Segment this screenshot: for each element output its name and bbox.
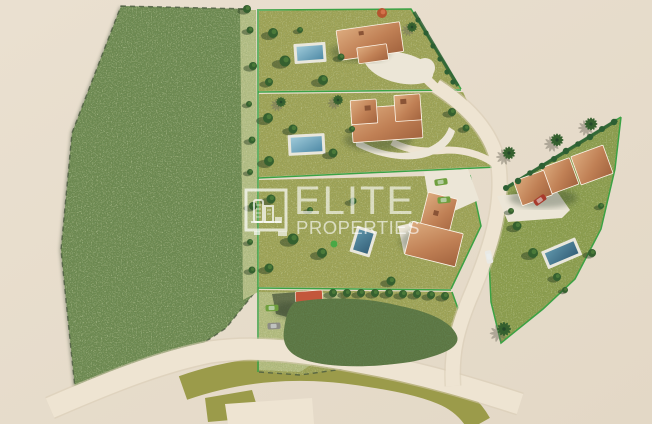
car-green-3: [265, 305, 278, 312]
pool-1: [293, 42, 326, 64]
pool-2: [288, 133, 326, 156]
car-grey: [267, 322, 280, 329]
property-aerial-rendering: ELITE PROPERTIES: [0, 0, 652, 424]
site-plan-scene: [0, 0, 652, 424]
green-bush: [331, 241, 338, 248]
car-green-2: [437, 196, 451, 204]
